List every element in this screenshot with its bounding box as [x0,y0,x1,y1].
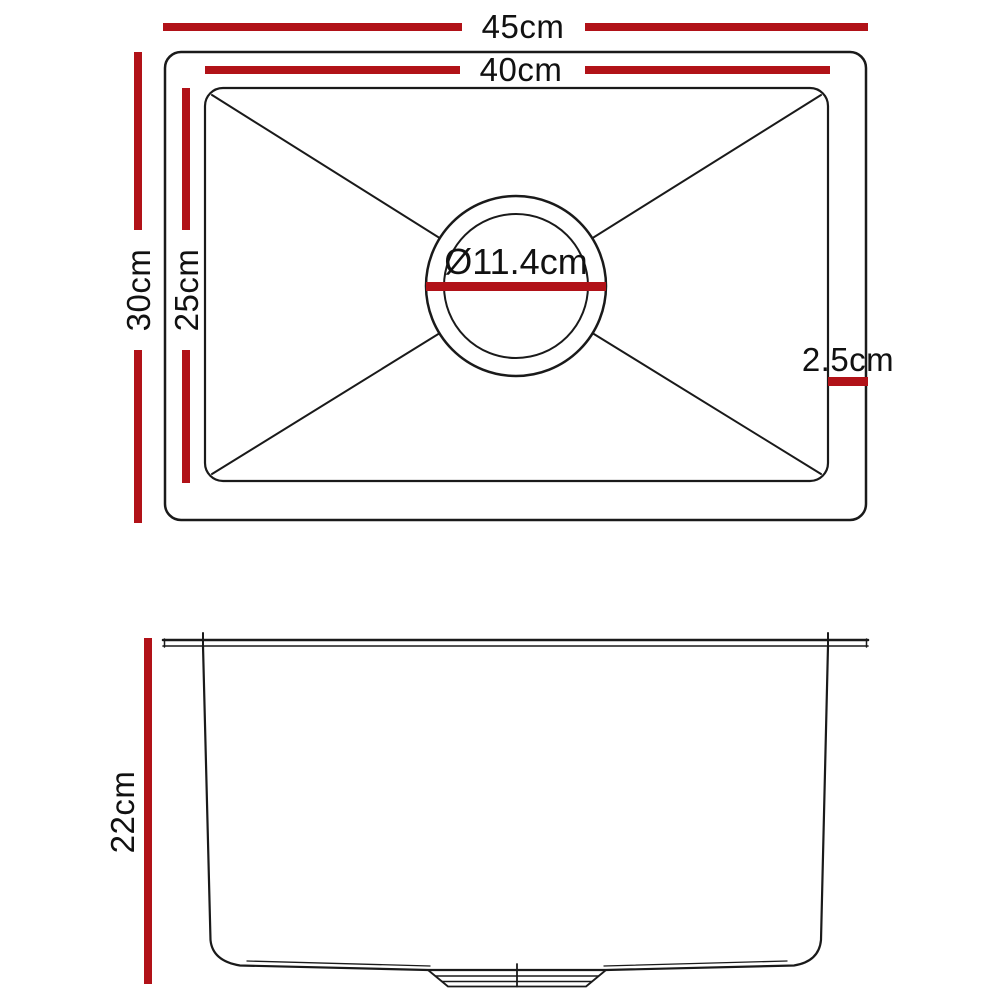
dim-40cm-bar-right [585,66,830,74]
dim-45cm-bar-right [585,23,868,31]
dim-30cm-bar-bottom [134,350,142,523]
dim-2-5cm-bar [828,377,868,386]
sink-dimension-diagram: 45cm 40cm 30cm 25cm Ø11.4cm 2.5cm [0,0,1000,1000]
dim-25cm-bar-top [182,88,190,230]
dim-30cm-bar-top [134,52,142,230]
rim-offset-label: 2.5cm [802,341,894,378]
side-view: 22cm [104,633,868,987]
inner-depth-label: 25cm [168,249,205,332]
top-view: 45cm 40cm 30cm 25cm Ø11.4cm 2.5cm [120,8,894,523]
dim-40cm-bar-left [205,66,460,74]
bowl-profile [203,646,828,970]
diagram-svg: 45cm 40cm 30cm 25cm Ø11.4cm 2.5cm [0,0,1000,1000]
outer-depth-label: 30cm [120,249,157,332]
inner-width-label: 40cm [480,51,563,88]
dim-45cm-bar-left [163,23,462,31]
dim-22cm-bar [144,638,152,984]
bowl-depth-label: 22cm [104,771,141,854]
dim-drain-diameter-bar [426,282,606,291]
drain-diameter-label: Ø11.4cm [444,241,587,282]
outer-width-label: 45cm [482,8,565,45]
dim-25cm-bar-bottom [182,350,190,483]
